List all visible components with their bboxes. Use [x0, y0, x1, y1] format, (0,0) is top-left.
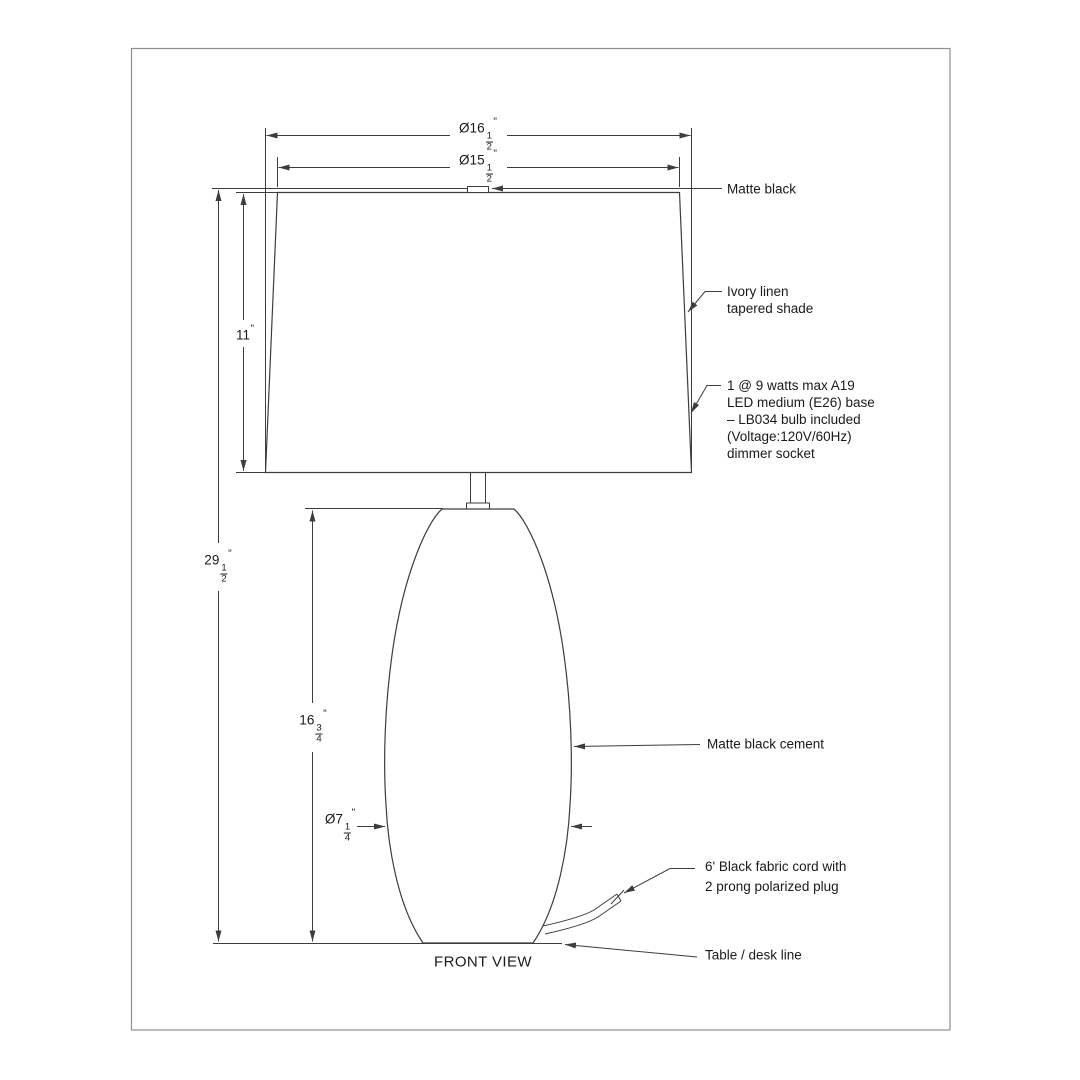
callout-shade-line1: Ivory linen: [727, 283, 813, 300]
callout-bulb-line3: – LB034 bulb included: [727, 411, 875, 428]
dim-overall-height: 2912": [202, 550, 233, 585]
callout-bulb: 1 @ 9 watts max A19 LED medium (E26) bas…: [727, 377, 875, 462]
callout-bulb-line5: dimmer socket: [727, 445, 875, 462]
drawing-linework: [0, 0, 1080, 1080]
body-outline: [385, 509, 572, 943]
view-title: FRONT VIEW: [434, 954, 532, 971]
callout-cord-line2: 2 prong polarized plug: [705, 877, 846, 897]
callout-cord-line1: 6' Black fabric cord with: [705, 857, 846, 877]
callout-bulb-line4: (Voltage:120V/60Hz): [727, 428, 875, 445]
shade-outline: [266, 193, 692, 473]
lamp-technical-drawing: Ø1612" Ø1512" 11" 2912" 1634" Ø714" Matt…: [0, 0, 1080, 1080]
dim-body-height: 1634": [297, 710, 328, 745]
dim-shade-bottom-diameter: Ø1612": [457, 118, 499, 153]
callout-shade: Ivory linen tapered shade: [727, 283, 813, 317]
finial: [468, 187, 489, 193]
callout-table: Table / desk line: [705, 947, 802, 964]
dim-shade-top-diameter: Ø1512": [457, 150, 499, 185]
callout-shade-line2: tapered shade: [727, 300, 813, 317]
callout-body: Matte black cement: [707, 736, 824, 753]
dim-body-diameter: Ø714": [323, 809, 357, 844]
callout-cord: 6' Black fabric cord with 2 prong polari…: [705, 857, 846, 897]
callout-bulb-line1: 1 @ 9 watts max A19: [727, 377, 875, 394]
neck-and-socket: [467, 473, 490, 509]
dim-shade-height: 11": [234, 324, 256, 342]
callout-bulb-line2: LED medium (E26) base: [727, 394, 875, 411]
callout-finial: Matte black: [727, 181, 796, 198]
